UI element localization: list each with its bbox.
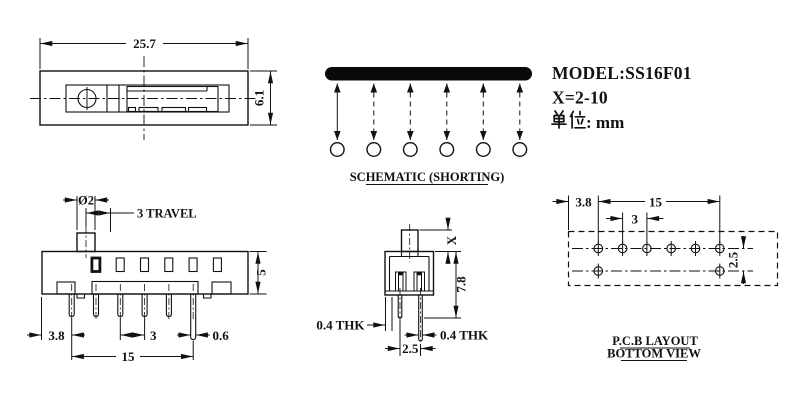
top-view-slider — [127, 87, 218, 112]
knob-height-value: X — [444, 235, 459, 245]
schematic-contact-arrows — [337, 84, 520, 141]
front-view: Ø2 3 TRAVEL — [27, 194, 269, 365]
schematic-terminals — [331, 143, 527, 157]
schematic-common-bar — [325, 67, 532, 81]
travel-value: 3 TRAVEL — [137, 207, 197, 221]
front-body-slots — [92, 258, 222, 272]
side-thk-left-dimension: 0.4 THK — [316, 297, 392, 333]
drawing-sheet: 25.7 6.1 — [0, 0, 800, 400]
pcb-view: 3.8 15 3 2.5 P.C.B LAYOUT BOTTOM VIEW — [553, 195, 778, 361]
pcb-pitch-value: 3 — [632, 212, 639, 227]
thk-left-value: 0.4 THK — [316, 318, 365, 333]
top-view: 25.7 6.1 — [30, 36, 277, 140]
side-view: X 7.8 0.4 THK 0.4 THK 2.5 — [316, 218, 489, 357]
switch-drawing-svg: 25.7 6.1 — [0, 0, 800, 400]
side-pin-spacing-dimension: 2.5 — [385, 321, 436, 357]
front-bottom-dimensions: 3.8 3 0.6 15 — [27, 297, 229, 364]
unit-value: : mm — [586, 113, 624, 132]
front-height-dimension: 5 — [250, 252, 269, 295]
pin-span-value: 15 — [122, 349, 136, 364]
front-pins — [69, 284, 196, 340]
pin-left-offset-value: 3.8 — [48, 328, 65, 343]
title-block: MODEL:SS16F01 X=2-10 : mm — [552, 63, 692, 132]
side-body-internals — [385, 252, 434, 292]
x-range: X=2-10 — [552, 88, 608, 108]
model-number: MODEL:SS16F01 — [552, 63, 692, 83]
pcb-board-outline — [569, 232, 778, 286]
front-travel-dimension: 3 TRAVEL — [86, 207, 197, 233]
pcb-label-line2: BOTTOM VIEW — [607, 347, 701, 361]
top-height-value: 6.1 — [252, 90, 267, 106]
thk-right-value: 0.4 THK — [440, 328, 489, 343]
schematic-view: SCHEMATIC (SHORTING) — [325, 67, 532, 185]
unit-cjk-glyphs — [552, 111, 585, 128]
pcb-row-spacing-value: 2.5 — [726, 251, 741, 268]
body-height-value: 5 — [254, 269, 269, 276]
schematic-label: SCHEMATIC (SHORTING) — [350, 170, 505, 184]
pcb-left-offset-value: 3.8 — [575, 195, 592, 210]
pin-spacing-value: 2.5 — [402, 341, 419, 356]
total-height-value: 7.8 — [454, 276, 469, 293]
pcb-span-value: 15 — [649, 195, 663, 210]
pin-width-value: 0.6 — [213, 328, 230, 343]
side-body-outline — [385, 252, 434, 296]
top-width-value: 25.7 — [133, 36, 156, 51]
top-view-height-dimension: 6.1 — [250, 71, 277, 125]
pin-pitch-value: 3 — [150, 328, 157, 343]
knob-dia-value: Ø2 — [78, 194, 94, 208]
front-body-base-steps — [57, 282, 231, 299]
side-total-height-dimension: 7.8 — [424, 252, 469, 318]
side-pins — [398, 288, 422, 344]
